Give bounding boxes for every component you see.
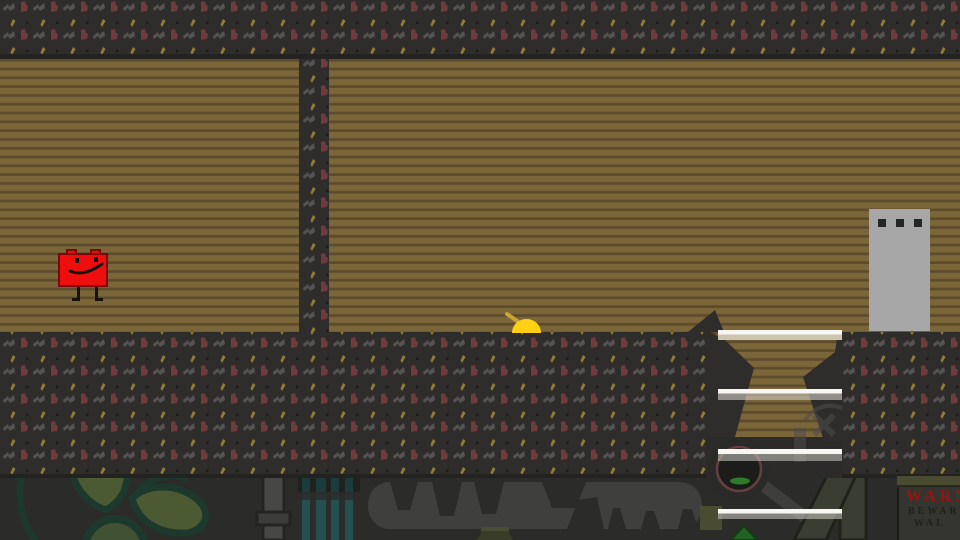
vertical-pipe-icon [257,474,290,540]
door-dot-icon [914,219,922,227]
player-foot-icon [72,298,80,301]
door-dot-icon [878,219,886,227]
game-viewport: WARN BEWAR WAL [0,0,960,540]
player-smile-icon [68,262,104,278]
sign-title: WARN [906,488,960,506]
shaft-opening [706,330,842,496]
door[interactable] [869,209,930,331]
wall-right-block [329,59,960,332]
mine[interactable] [505,311,541,333]
ceiling-block [0,0,960,55]
ladder-rung-4[interactable] [718,509,842,519]
warning-sign: WARN BEWAR WAL [897,476,960,540]
sign-beam [897,476,960,487]
door-dot-icon [896,219,904,227]
ladder-rung-1[interactable] [718,330,842,340]
wall-left-block [0,59,299,332]
sign-subtitle-2: WAL [914,518,960,530]
sign-subtitle: BEWAR [908,506,960,518]
green-smear-icon [730,478,750,485]
wall-divider-column [299,59,329,332]
pedestal-icon [477,527,513,540]
player-foot-icon [95,298,103,301]
ladder-rung-3[interactable] [718,449,842,461]
gear-icon [368,482,702,529]
ladder-rung-2[interactable] [718,389,842,400]
player-character[interactable] [58,249,110,303]
ceiling-edge [0,54,960,59]
teal-grate-icon [298,478,360,540]
